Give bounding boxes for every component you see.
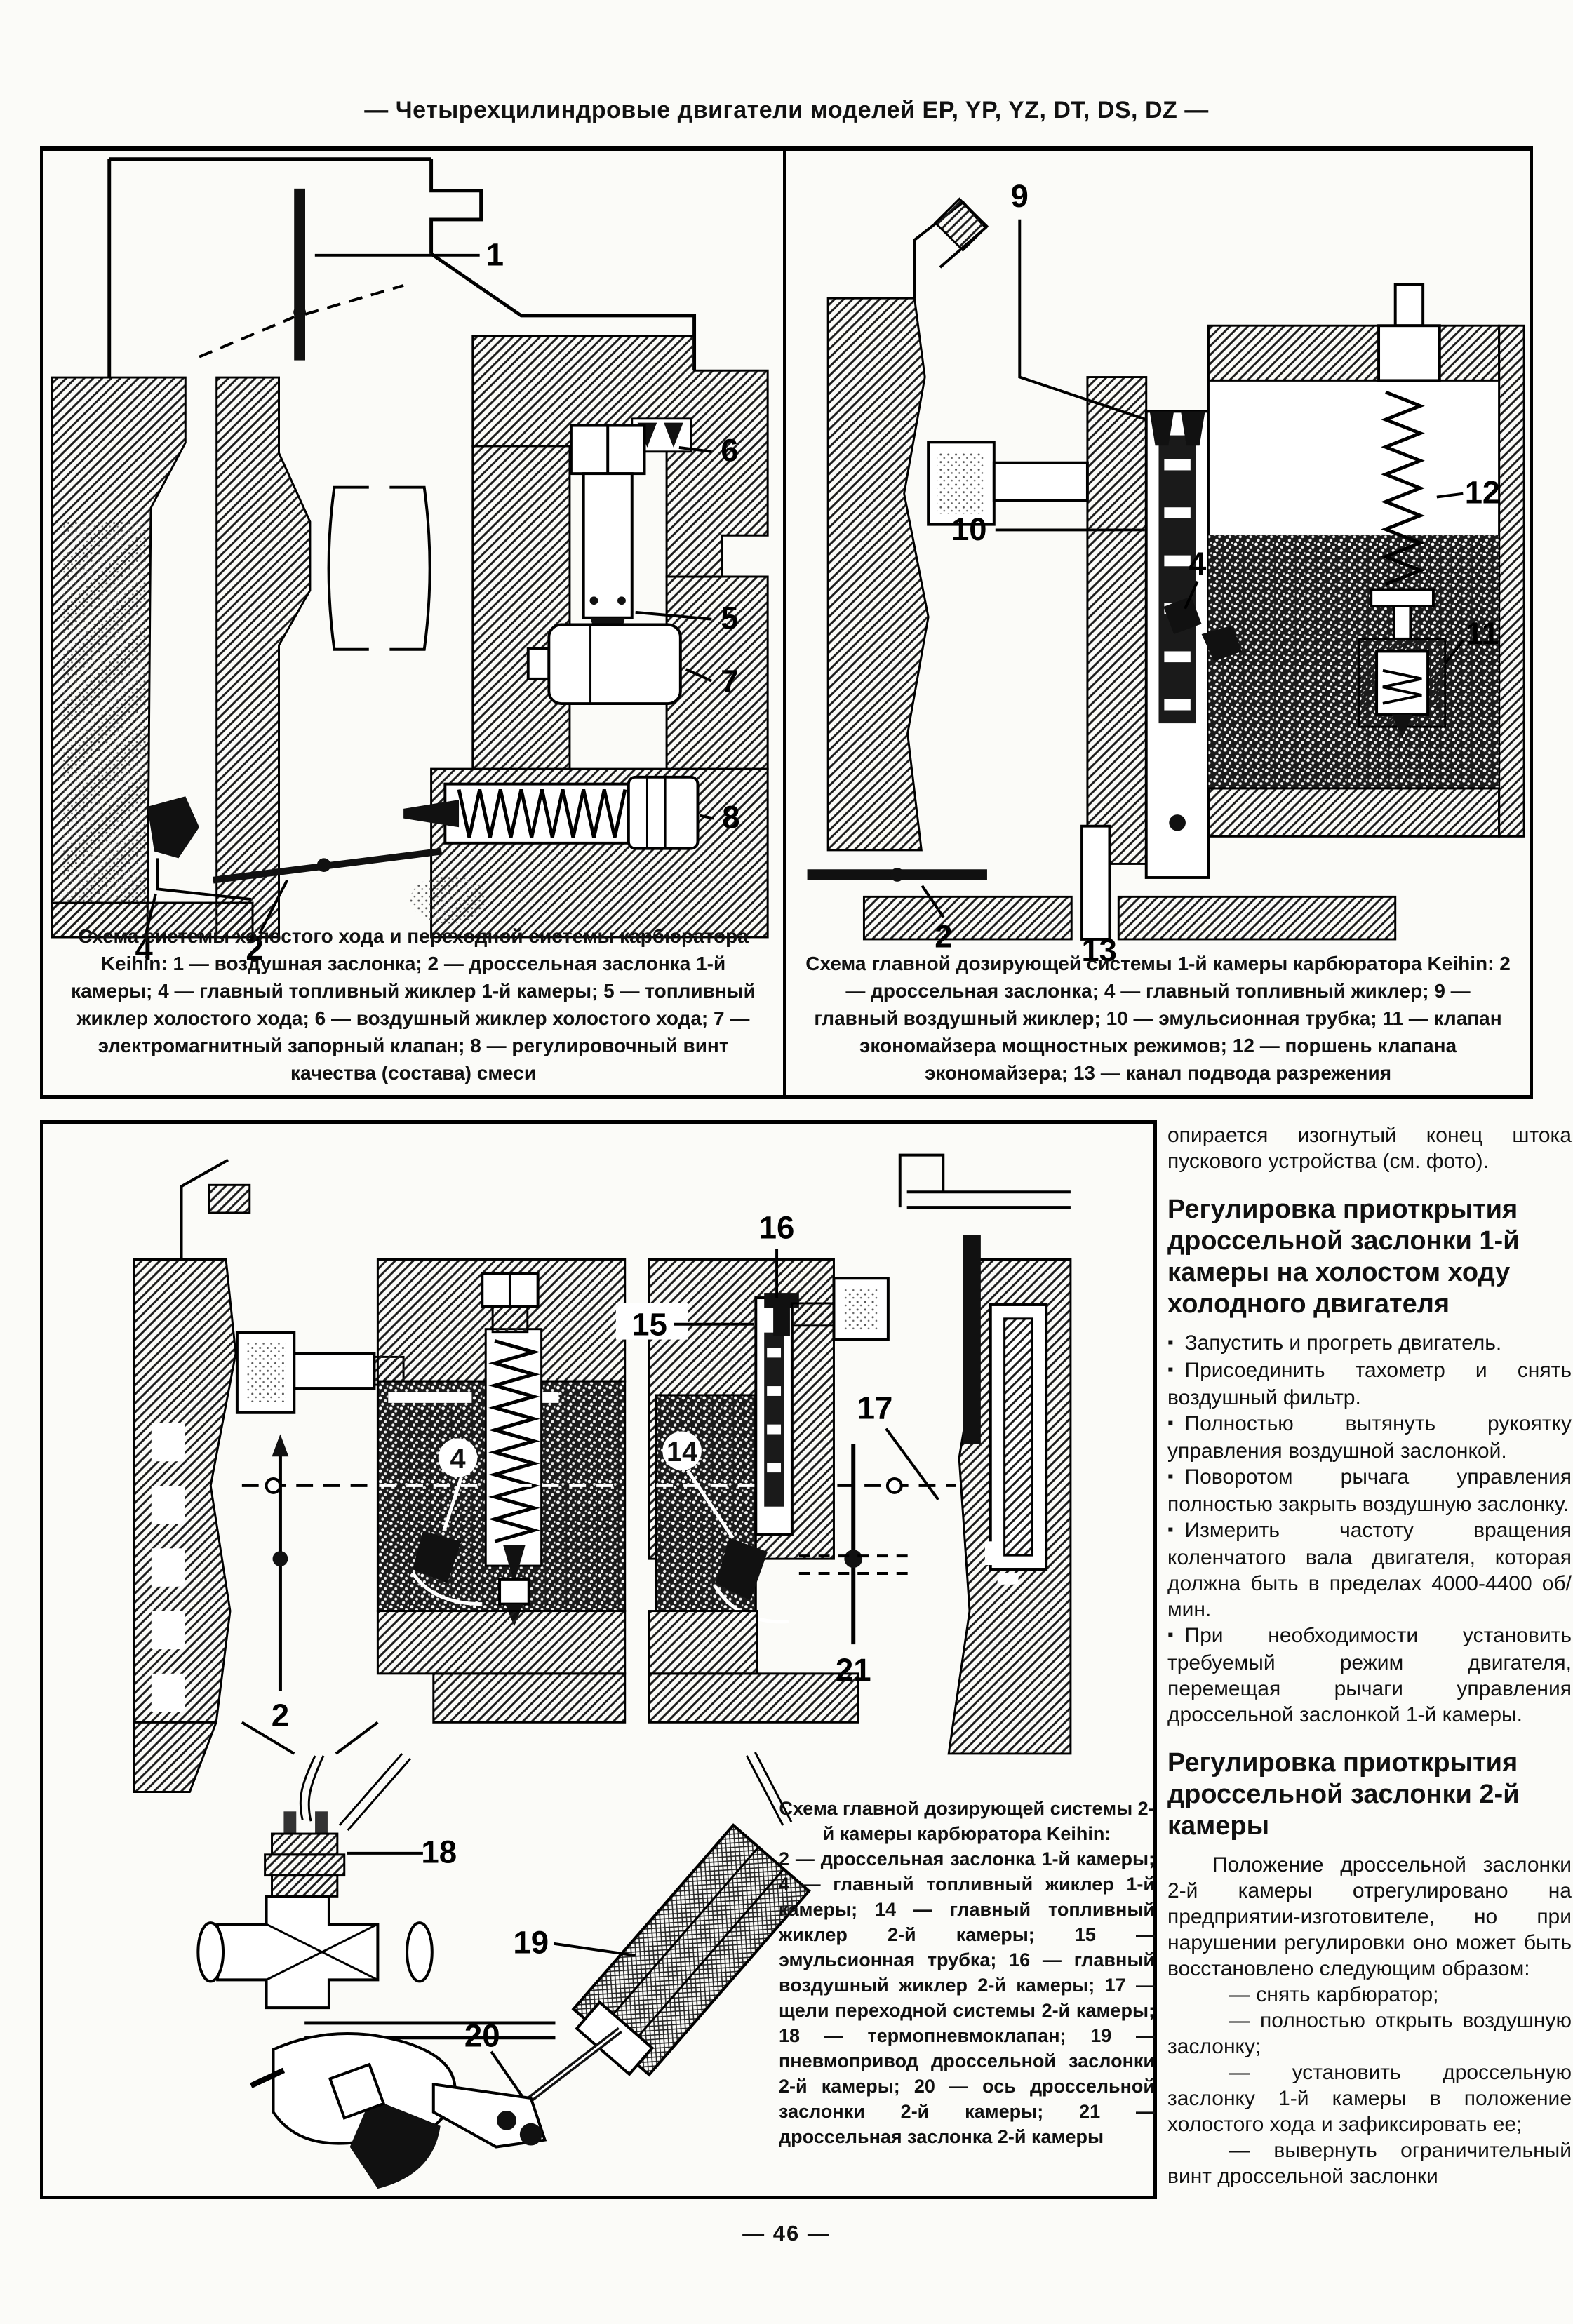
page-header: — Четырехцилиндровые двигатели моделей E…	[0, 97, 1573, 124]
step-item: — полностью открыть воздушную заслонку;	[1167, 2008, 1572, 2060]
bullet-marker: ▪	[1167, 1357, 1174, 1383]
vacuum-hoses	[300, 1752, 791, 1830]
figure2-caption-title: Схема главной дозирующей системы 1-й кам…	[805, 953, 1494, 974]
figure1-caption-items: 1 — воздушная заслонка; 2 — дроссельная …	[71, 953, 756, 1084]
bullet-marker: ▪	[1167, 1329, 1174, 1355]
callout-6: 6	[721, 433, 738, 469]
figure2-diagram: 9 10 12 11 4 2 13	[786, 151, 1530, 968]
bullet-text: Полностью вытянуть рукоятку управления в…	[1167, 1412, 1572, 1463]
callout-21: 21	[836, 1652, 871, 1688]
throttle-lever	[251, 2023, 556, 2189]
callout-7: 7	[721, 664, 738, 699]
manual-page: — Четырехцилиндровые двигатели моделей E…	[0, 0, 1573, 2324]
figure3-caption: Схема главной дозирующей системы 2-й кам…	[779, 1796, 1155, 2149]
callout-5: 5	[721, 600, 738, 636]
fuel-level-mark-1	[267, 1479, 281, 1493]
figure3-caption-title: Схема главной дозирующей системы 2-й кам…	[779, 1796, 1155, 1846]
figure2-panel: 9 10 12 11 4 2 13 Схема главной дозирующ…	[783, 151, 1530, 1095]
bullet-text: Поворотом рычага управления полностью за…	[1167, 1465, 1572, 1516]
bullet-marker: ▪	[1167, 1410, 1174, 1436]
emulsion-tube	[1146, 411, 1209, 878]
figure1-diagram: 1 6 5 7 8 4 2	[43, 151, 776, 968]
step-item: — вывернуть ограничительный винт дроссел…	[1167, 2137, 1572, 2189]
venturi-insert	[329, 488, 430, 650]
bullet-item: ▪Присоединить тахометр и снять воздушный…	[1167, 1357, 1572, 1411]
choke-plate	[199, 189, 403, 361]
callout-16: 16	[759, 1210, 795, 1246]
mixture-spray	[410, 875, 487, 924]
flow-axis-1	[272, 1435, 289, 1691]
callout-2: 2	[272, 1698, 289, 1733]
bullet-marker: ▪	[1167, 1517, 1174, 1543]
bullet-item: ▪Запустить и прогреть двигатель.	[1167, 1330, 1572, 1357]
callout-11: 11	[1466, 616, 1499, 652]
bullet-marker: ▪	[1167, 1463, 1174, 1489]
callout-15: 15	[631, 1307, 667, 1343]
fuel-column	[63, 522, 147, 903]
bullet-marker: ▪	[1167, 1622, 1174, 1648]
page-number: — 46 —	[0, 2221, 1573, 2246]
figure1-caption: Схема системы холостого хода и переходно…	[43, 922, 783, 1087]
callout-12: 12	[1465, 475, 1500, 511]
bullet-item: ▪При необходимости установить требуемый …	[1167, 1623, 1572, 1728]
callout-9: 9	[1011, 178, 1029, 214]
callout-20: 20	[464, 2018, 500, 2054]
bullet-text: При необходимости установить требуемый р…	[1167, 1624, 1572, 1726]
figure3-panel: 16 15 4 14 17 21 2 18 19 20 Схема главно…	[40, 1120, 1157, 2199]
step-item: — установить дроссельную заслонку 1-й ка…	[1167, 2060, 1572, 2137]
transition-slits	[985, 1305, 1046, 1585]
throttle-plate	[808, 868, 987, 882]
thermo-valve	[198, 1811, 431, 2008]
top-figure-panels: 1 6 5 7 8 4 2 Схема системы холостого хо…	[40, 146, 1533, 1099]
figure2-caption: Схема главной дозирующей системы 1-й кам…	[786, 950, 1530, 1087]
solenoid-valve	[528, 625, 681, 704]
fuel-level-mark-2	[888, 1479, 902, 1493]
callout-10: 10	[951, 511, 986, 547]
float-chamber	[1208, 325, 1524, 836]
callout-4: 4	[450, 1444, 465, 1475]
bullet-item: ▪Поворотом рычага управления полностью з…	[1167, 1464, 1572, 1517]
callout-18: 18	[421, 1834, 457, 1870]
callout-8: 8	[722, 799, 739, 835]
callout-4: 4	[1189, 546, 1206, 582]
step-item: — снять карбюратор;	[1167, 1982, 1572, 2008]
callout-17: 17	[857, 1390, 893, 1426]
figure1-panel: 1 6 5 7 8 4 2 Схема системы холостого хо…	[43, 151, 783, 1095]
bullet-text: Измерить частоту вращения коленчатого ва…	[1167, 1519, 1572, 1621]
fuel	[1208, 535, 1499, 788]
callout-14: 14	[667, 1437, 697, 1467]
bullet-item: ▪Полностью вытянуть рукоятку управления …	[1167, 1411, 1572, 1464]
text-column: опирается изогнутый конец штока пусковог…	[1167, 1122, 1572, 2189]
section-heading-1: Регулировка приоткрытия дроссельной засл…	[1167, 1194, 1572, 1320]
idle-fuel-jet	[571, 426, 645, 652]
section2-intro: Положение дроссельной заслонки 2-й камер…	[1167, 1852, 1572, 1982]
bullet-text: Запустить и прогреть двигатель.	[1185, 1331, 1502, 1355]
center-wall	[1087, 377, 1146, 864]
bullet-item: ▪Измерить частоту вращения коленчатого в…	[1167, 1517, 1572, 1623]
figure3-caption-items: 2 — дроссельная заслонка 1-й камеры; 4 —…	[779, 1846, 1155, 2149]
bullet-text: Присоединить тахометр и снять воздушный …	[1167, 1359, 1572, 1409]
callout-1: 1	[486, 237, 504, 273]
intro-paragraph: опирается изогнутый конец штока пусковог…	[1167, 1122, 1572, 1174]
section-heading-2: Регулировка приоткрытия дроссельной засл…	[1167, 1747, 1572, 1842]
callout-19: 19	[513, 1925, 549, 1961]
chamber1-section	[134, 1160, 625, 1792]
